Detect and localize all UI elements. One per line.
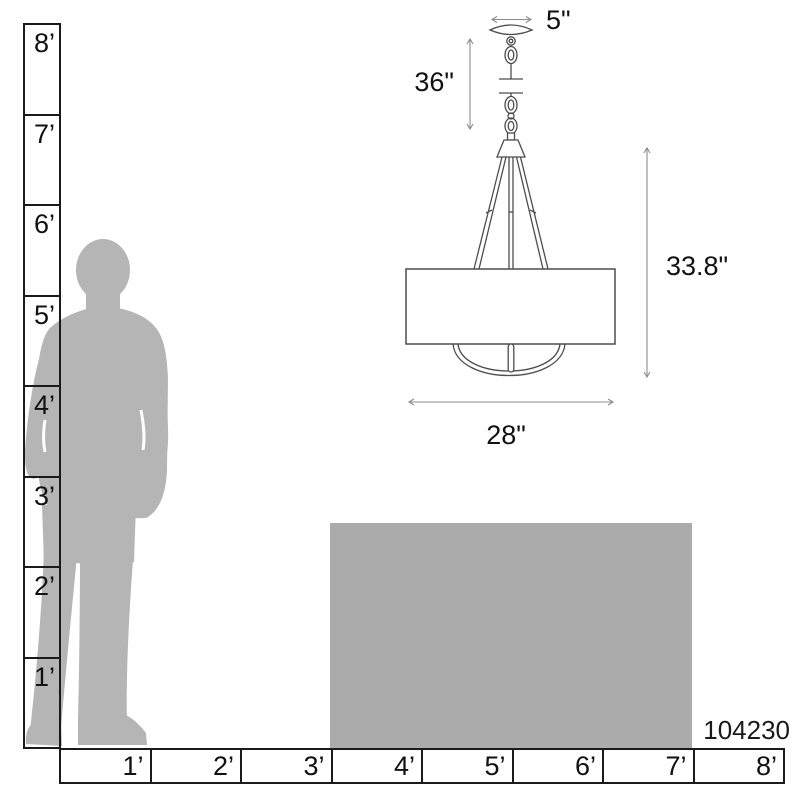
line-art-canvas — [0, 0, 800, 800]
product-number: 104230 — [646, 716, 790, 745]
horizontal-ruler-label: 2’ — [213, 753, 240, 780]
pendant-canopy — [490, 25, 532, 35]
pendant-chain — [499, 37, 523, 140]
vertical-ruler-cell: 6’ — [25, 206, 59, 297]
horizontal-ruler-label: 8’ — [756, 753, 783, 780]
vertical-ruler-cell: 3’ — [25, 478, 59, 569]
vertical-ruler-cell: 1’ — [25, 659, 59, 748]
horizontal-ruler-label: 1’ — [122, 753, 149, 780]
vertical-ruler-cell: 7’ — [25, 116, 59, 207]
pendant-cone — [497, 140, 525, 157]
horizontal-ruler-cell: 6’ — [514, 750, 605, 782]
canopy-width-label: 5" — [546, 5, 571, 36]
fixture-width-arrow — [409, 399, 613, 405]
vertical-ruler-cell: 8’ — [25, 25, 59, 116]
pendant-center-stem — [508, 344, 514, 372]
chain-length-arrow — [467, 39, 473, 129]
vertical-ruler-label: 6’ — [25, 206, 59, 238]
horizontal-ruler-cell: 4’ — [333, 750, 424, 782]
horizontal-ruler-cell: 3’ — [242, 750, 333, 782]
fixture-height-label: 33.8" — [666, 251, 728, 282]
horizontal-ruler-cell: 8’ — [695, 750, 784, 782]
vertical-ruler-label: 5’ — [25, 297, 59, 329]
fixture-width-label: 28" — [456, 420, 556, 451]
dimension-diagram: 8’ 7’ 6’ 5’ 4’ 3’ 2’ 1’ 1’ 2’ 3’ 4’ 5’ 6… — [0, 0, 800, 800]
horizontal-ruler-label: 6’ — [575, 753, 602, 780]
vertical-ruler-label: 3’ — [25, 478, 59, 510]
vertical-ruler-cell: 4’ — [25, 387, 59, 478]
vertical-ruler-cell: 2’ — [25, 568, 59, 659]
chain-length-label: 36" — [390, 67, 454, 98]
horizontal-ruler-cell: 2’ — [152, 750, 243, 782]
pendant-drum-shade — [406, 269, 615, 344]
vertical-ruler-label: 7’ — [25, 116, 59, 148]
vertical-ruler-cell: 5’ — [25, 297, 59, 388]
vertical-ruler-label: 4’ — [25, 387, 59, 419]
vertical-ruler: 8’ 7’ 6’ 5’ 4’ 3’ 2’ 1’ — [23, 23, 61, 749]
vertical-ruler-label: 1’ — [25, 659, 59, 691]
canopy-width-arrow — [492, 17, 531, 23]
horizontal-ruler-label: 7’ — [665, 753, 692, 780]
vertical-ruler-label: 8’ — [25, 25, 59, 57]
horizontal-ruler-label: 3’ — [303, 753, 330, 780]
horizontal-ruler-cell: 5’ — [423, 750, 514, 782]
horizontal-ruler-label: 5’ — [484, 753, 511, 780]
person-right-leg — [78, 548, 133, 722]
horizontal-ruler: 1’ 2’ 3’ 4’ 5’ 6’ 7’ 8’ — [59, 748, 785, 784]
fixture-height-arrow — [644, 148, 650, 377]
person-right-shoe — [78, 713, 147, 745]
vertical-ruler-label: 2’ — [25, 568, 59, 600]
horizontal-ruler-cell: 1’ — [61, 750, 152, 782]
horizontal-ruler-label: 4’ — [394, 753, 421, 780]
horizontal-ruler-cell: 7’ — [604, 750, 695, 782]
